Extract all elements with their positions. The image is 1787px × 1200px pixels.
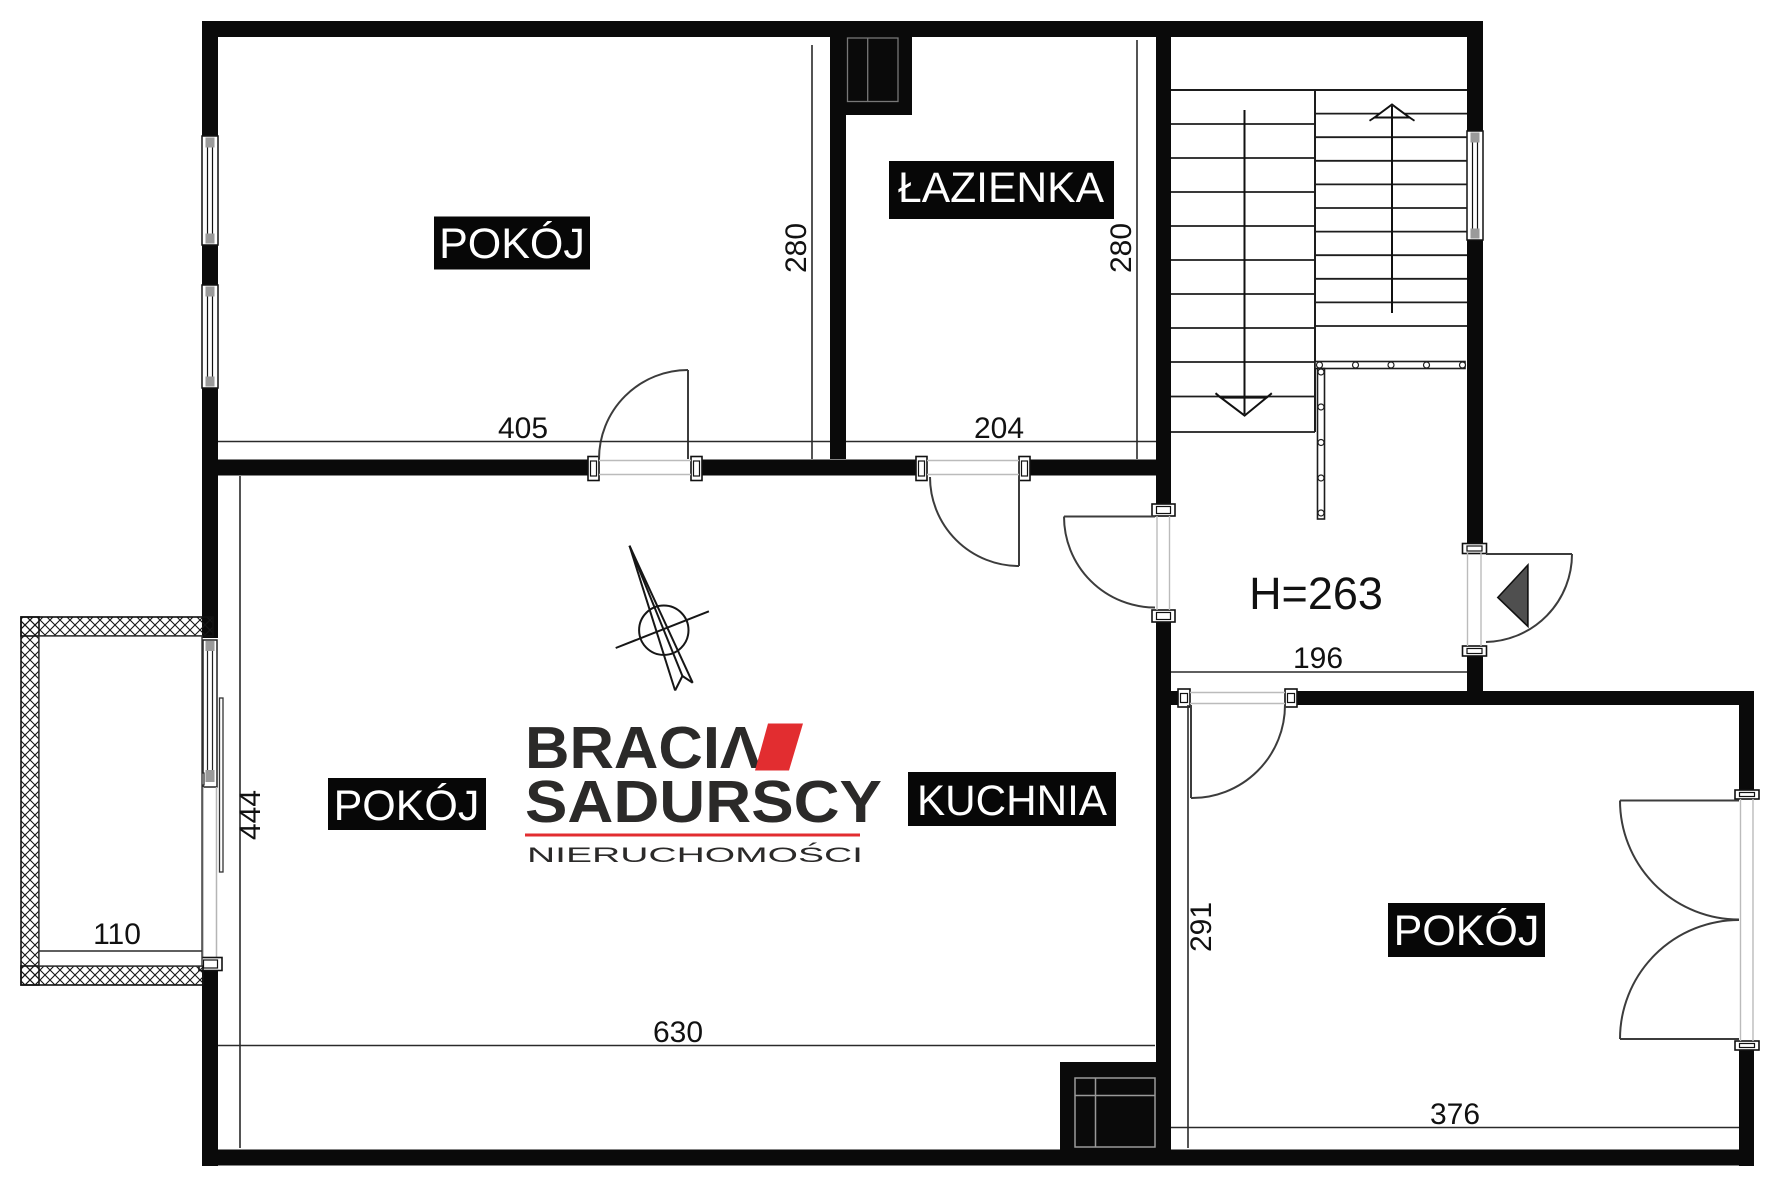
svg-text:110: 110 — [93, 918, 141, 951]
svg-text:KUCHNIA: KUCHNIA — [917, 777, 1107, 825]
svg-text:405: 405 — [498, 412, 548, 445]
svg-text:NIERUCHOMOŚCI: NIERUCHOMOŚCI — [527, 843, 863, 867]
svg-text:204: 204 — [974, 412, 1024, 445]
svg-text:POKÓJ: POKÓJ — [439, 220, 585, 268]
svg-text:291: 291 — [1185, 902, 1218, 952]
svg-text:SADURSCY: SADURSCY — [525, 769, 882, 835]
svg-text:630: 630 — [653, 1016, 703, 1049]
svg-text:POKÓJ: POKÓJ — [1394, 907, 1540, 955]
svg-text:376: 376 — [1430, 1098, 1480, 1131]
svg-text:POKÓJ: POKÓJ — [334, 782, 480, 830]
svg-text:280: 280 — [780, 223, 813, 273]
svg-text:ŁAZIENKA: ŁAZIENKA — [898, 164, 1104, 212]
svg-text:196: 196 — [1293, 642, 1343, 675]
svg-text:H=263: H=263 — [1249, 568, 1383, 619]
svg-text:444: 444 — [234, 790, 267, 840]
svg-text:280: 280 — [1105, 223, 1138, 273]
